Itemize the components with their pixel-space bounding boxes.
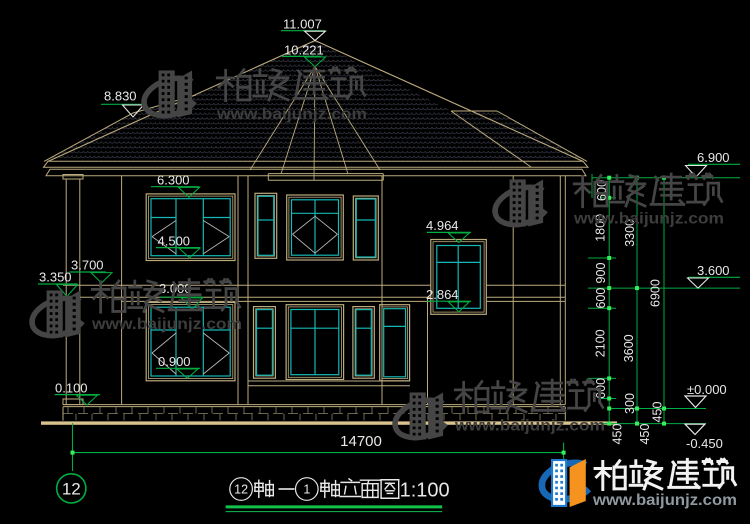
svg-text:6.300: 6.300 [157, 173, 190, 188]
svg-text:www.baijunjz.com: www.baijunjz.com [592, 492, 737, 509]
svg-text:14700: 14700 [340, 433, 382, 450]
svg-text:0.100: 0.100 [55, 381, 88, 396]
svg-text:www.baijunjz.com: www.baijunjz.com [216, 106, 367, 123]
svg-text:600: 600 [594, 288, 608, 309]
svg-text:6.900: 6.900 [697, 150, 730, 165]
svg-text:www.baijunjz.com: www.baijunjz.com [91, 316, 242, 333]
svg-text:2100: 2100 [593, 329, 607, 357]
svg-text:450: 450 [610, 424, 624, 445]
svg-text:6900: 6900 [648, 279, 662, 307]
svg-text:3.350: 3.350 [39, 270, 72, 285]
svg-text:12: 12 [62, 480, 81, 499]
svg-text:www.baijunjz.com: www.baijunjz.com [573, 211, 724, 228]
svg-text:-0.450: -0.450 [686, 436, 723, 451]
svg-text:10.221: 10.221 [284, 43, 324, 58]
svg-text:12: 12 [234, 483, 248, 497]
svg-text:300: 300 [623, 393, 637, 414]
svg-text:0.900: 0.900 [158, 354, 191, 369]
svg-text:www.baijunjz.com: www.baijunjz.com [454, 418, 605, 435]
svg-text:450: 450 [638, 424, 652, 445]
svg-text:4.500: 4.500 [158, 234, 191, 249]
svg-text:4.964: 4.964 [426, 218, 459, 233]
svg-text:1:100: 1:100 [400, 480, 450, 502]
svg-text:3.700: 3.700 [71, 258, 104, 273]
svg-text:1: 1 [303, 483, 310, 497]
svg-text:900: 900 [594, 263, 608, 284]
svg-text:3.600: 3.600 [697, 263, 730, 278]
svg-text:3600: 3600 [622, 334, 636, 362]
svg-text:2.864: 2.864 [426, 287, 459, 302]
svg-text:8.830: 8.830 [104, 89, 137, 104]
svg-text:11.007: 11.007 [283, 17, 322, 32]
svg-text:450: 450 [650, 402, 664, 423]
svg-text:±0.000: ±0.000 [687, 382, 727, 397]
